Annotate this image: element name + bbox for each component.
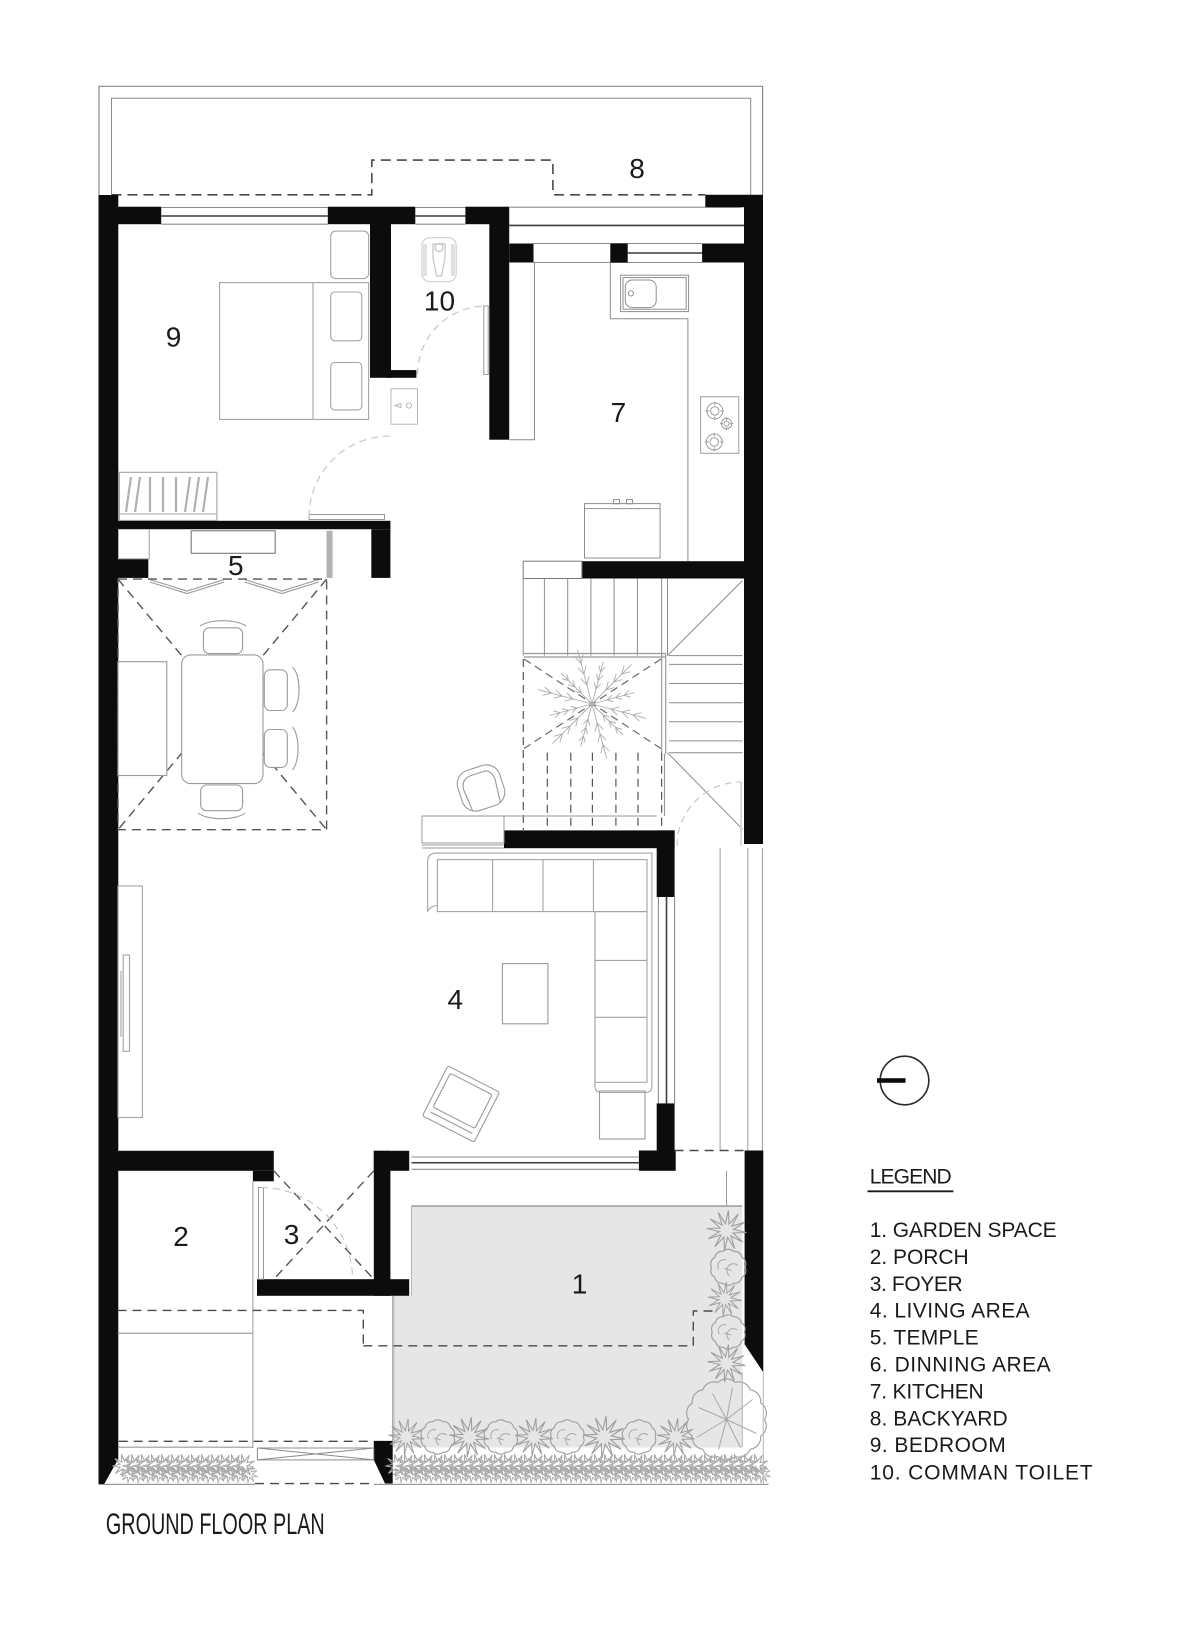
svg-text:4. LIVING AREA: 4. LIVING AREA (870, 1300, 1030, 1323)
svg-text:2. PORCH: 2. PORCH (870, 1246, 969, 1269)
svg-text:5: 5 (228, 550, 244, 581)
svg-text:9: 9 (166, 321, 182, 352)
svg-text:3. FOYER: 3. FOYER (870, 1273, 963, 1296)
svg-text:6. DINNING AREA: 6. DINNING AREA (870, 1354, 1051, 1377)
svg-text:10. COMMAN TOILET: 10. COMMAN TOILET (870, 1462, 1093, 1485)
svg-text:7: 7 (611, 397, 627, 428)
svg-text:LEGEND: LEGEND (870, 1165, 952, 1188)
svg-text:10: 10 (424, 285, 455, 316)
svg-text:2: 2 (173, 1221, 189, 1252)
svg-text:4: 4 (448, 984, 464, 1015)
svg-text:9. BEDROOM: 9. BEDROOM (870, 1434, 1006, 1457)
svg-text:1. GARDEN SPACE: 1. GARDEN SPACE (870, 1219, 1057, 1242)
svg-text:3: 3 (284, 1219, 300, 1250)
svg-text:7. KITCHEN: 7. KITCHEN (870, 1380, 984, 1403)
svg-text:GROUND FLOOR PLAN: GROUND FLOOR PLAN (106, 1508, 325, 1541)
svg-text:1: 1 (572, 1269, 588, 1300)
svg-text:8: 8 (629, 153, 645, 184)
svg-text:5. TEMPLE: 5. TEMPLE (870, 1327, 979, 1350)
svg-text:8. BACKYARD: 8. BACKYARD (870, 1407, 1008, 1430)
